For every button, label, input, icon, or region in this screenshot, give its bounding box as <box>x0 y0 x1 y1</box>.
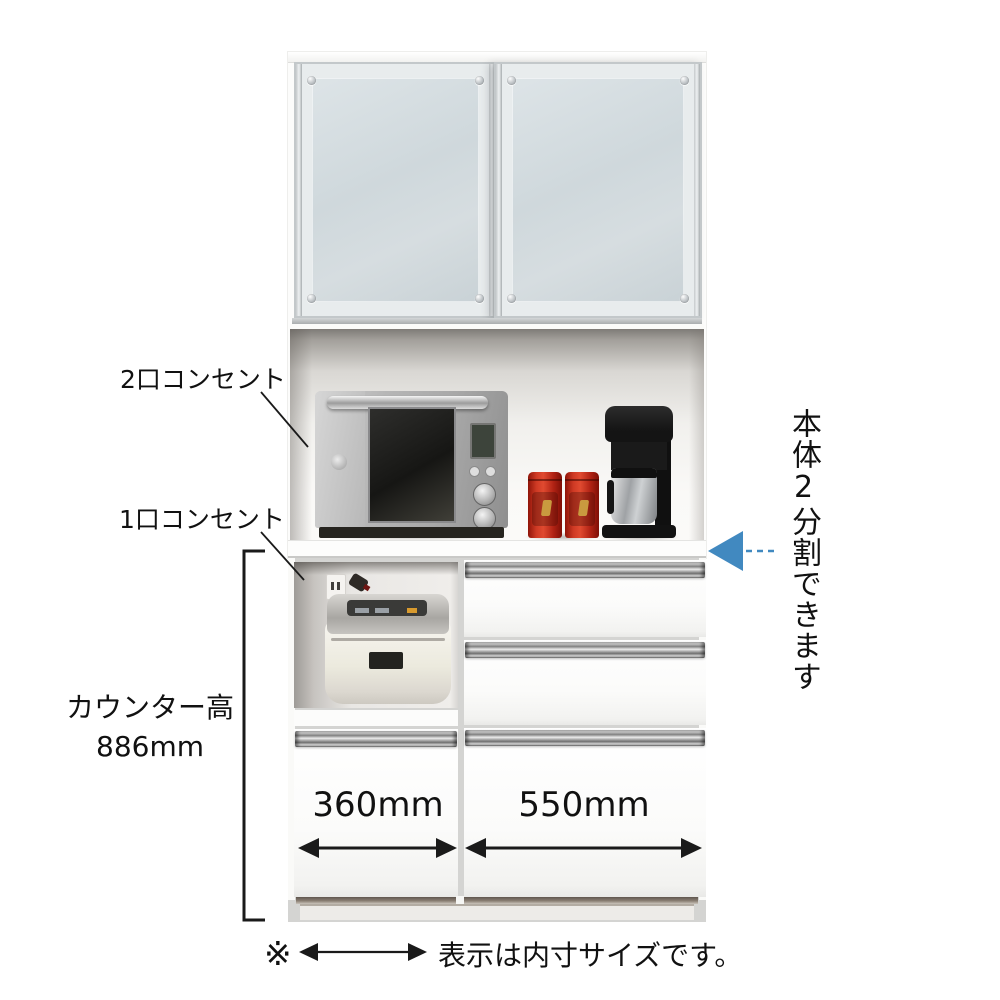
countertop <box>288 540 706 558</box>
arrowhead-left <box>299 943 318 961</box>
annotated-product-image: 2口コンセント 1口コンセント カウンター高 886mm 360mm 550mm… <box>0 0 1000 1000</box>
drawer-handle <box>465 562 705 578</box>
kickboard <box>300 904 694 920</box>
niche-front-strip <box>294 710 458 726</box>
legend-reference-mark: ※ <box>264 934 292 973</box>
microwave-oven <box>315 391 508 538</box>
microwave-logo-badge <box>331 454 347 470</box>
glass-fixing-cap <box>680 76 689 85</box>
coffee-maker <box>605 406 673 538</box>
glass-fixing-cap <box>307 76 316 85</box>
coffee-maker-head <box>605 406 673 442</box>
microwave-base <box>319 527 504 538</box>
label-split-note: 本体2分割できます <box>781 408 825 692</box>
label-outlet-2: 2口コンセント <box>120 360 286 396</box>
lower-cabinet-unit <box>288 558 706 922</box>
coffee-carafe <box>611 468 657 524</box>
rice-cooker-display <box>369 652 403 669</box>
coffee-maker-base <box>602 525 676 538</box>
label-outlet-1: 1口コンセント <box>119 500 285 536</box>
rice-cooker-control-panel <box>347 600 427 616</box>
rice-cooker <box>325 594 451 704</box>
microwave-knob <box>473 483 496 506</box>
glass-fixing-cap <box>475 76 484 85</box>
drawer-handle <box>465 642 705 658</box>
microwave-button <box>485 466 496 477</box>
drawer-handle <box>295 731 457 747</box>
sliding-glass-door-right <box>494 62 702 318</box>
glass-fixing-cap <box>307 294 316 303</box>
glass-fixing-cap <box>507 76 516 85</box>
canister-emblem <box>578 500 589 516</box>
sliding-glass-door-left <box>294 62 497 318</box>
drawer-middle-right <box>464 640 706 725</box>
label-counter-height: カウンター高 886mm <box>50 688 250 766</box>
canister-label <box>532 492 558 526</box>
glass-fixing-cap <box>680 294 689 303</box>
upper-cabinet-unit <box>288 52 706 558</box>
counter-height-title: カウンター高 <box>50 688 250 727</box>
microwave-display <box>470 423 496 459</box>
glass-fixing-cap <box>475 294 484 303</box>
frosted-glass-panel <box>512 78 684 302</box>
rice-cooker-lid-seam <box>331 638 445 641</box>
counter-height-value: 886mm <box>50 727 250 766</box>
base-shadow <box>296 897 698 904</box>
drawer-top-right <box>464 560 706 637</box>
frosted-glass-panel <box>312 78 479 302</box>
microwave-button <box>469 466 480 477</box>
canister-emblem <box>541 500 552 516</box>
arrowhead-right <box>408 943 427 961</box>
label-inner-width-left: 360mm <box>298 785 458 825</box>
red-tea-canister <box>565 472 599 538</box>
canister-label <box>569 492 595 526</box>
glass-fixing-cap <box>507 294 516 303</box>
legend-note-text: 表示は内寸サイズです。 <box>438 934 742 974</box>
drawer-handle <box>465 730 705 746</box>
microwave-door-window <box>368 407 456 523</box>
red-tea-canister <box>528 472 562 538</box>
split-arrow-icon <box>708 531 743 571</box>
label-inner-width-right: 550mm <box>464 785 704 825</box>
